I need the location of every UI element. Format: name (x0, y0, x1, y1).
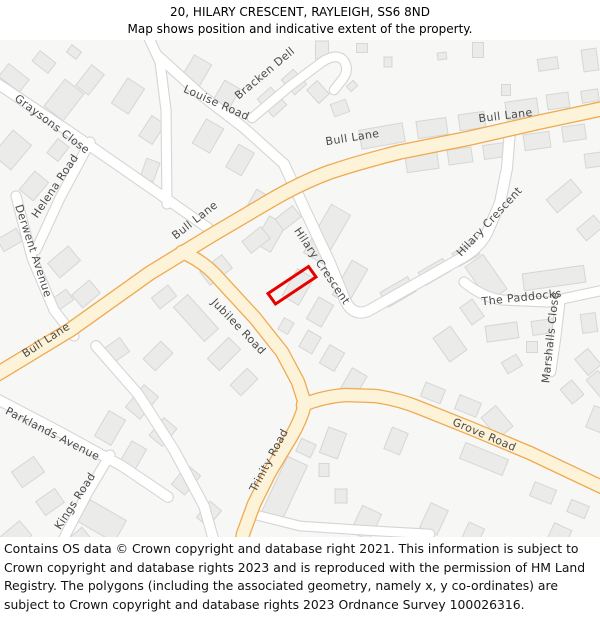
building (562, 124, 587, 142)
building (527, 342, 538, 353)
page-title: 20, HILARY CRESCENT, RAYLEIGH, SS6 8ND (0, 5, 600, 19)
building (473, 43, 484, 58)
building (546, 92, 570, 110)
map-container: Graysons CloseHelena RoadDerwent AvenueL… (0, 40, 600, 537)
building (581, 48, 599, 72)
map-header: 20, HILARY CRESCENT, RAYLEIGH, SS6 8ND M… (0, 0, 600, 40)
building (584, 152, 600, 168)
building (335, 489, 347, 503)
copyright-footer: Contains OS data © Crown copyright and d… (0, 537, 600, 628)
building (357, 44, 368, 53)
building (319, 464, 329, 477)
page-subtitle: Map shows position and indicative extent… (0, 22, 600, 36)
building (537, 57, 558, 72)
building (437, 52, 447, 60)
building (502, 85, 511, 96)
building (580, 313, 597, 334)
property-map: Graysons CloseHelena RoadDerwent AvenueL… (0, 40, 600, 537)
building (581, 89, 600, 103)
building (384, 57, 392, 67)
building (416, 117, 448, 138)
building (523, 131, 551, 150)
